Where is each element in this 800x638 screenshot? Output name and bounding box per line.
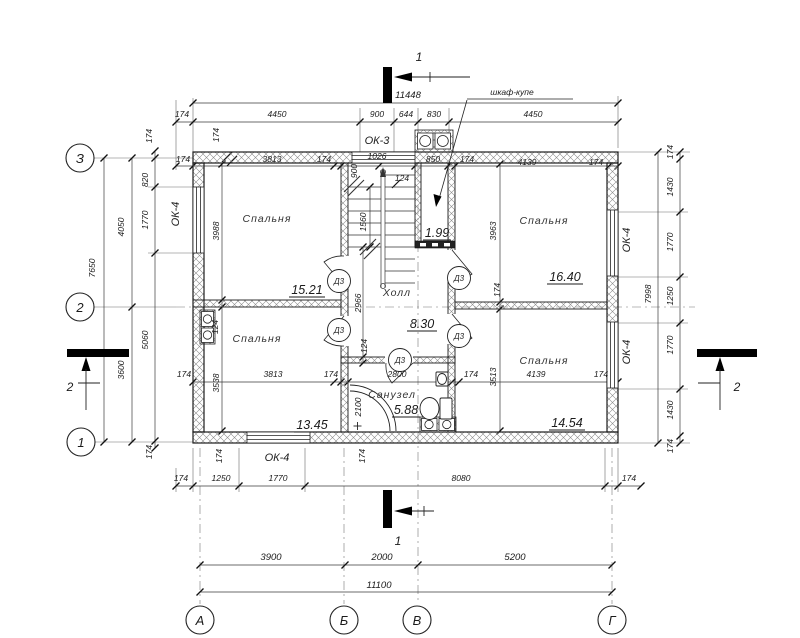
section-label-bottom: 1 <box>395 534 402 548</box>
dim-inner-top: 3813 <box>263 154 282 164</box>
dim-mid: 3813 <box>264 369 283 379</box>
dim-stair-width: 900 <box>349 164 359 178</box>
room-area-bedroom-tl: 15.21 <box>291 283 322 297</box>
axis-row-label: 2 <box>75 300 84 315</box>
dim-partition-tick: 124 <box>210 320 220 334</box>
window-label-ok4-right: ОК-4 <box>621 228 633 253</box>
dim-left-inner: 1770 <box>140 210 150 229</box>
dim-right-inner: 1770 <box>665 232 675 251</box>
axis-col-label: В <box>413 613 422 628</box>
dim-right-total: 7998 <box>643 284 653 303</box>
dim-wall-tick: 174 <box>144 129 154 143</box>
dim-left-axis: 4050 <box>116 217 126 236</box>
staircase <box>344 167 415 289</box>
dim-mid: 174 <box>464 369 478 379</box>
door-tag: Д3 <box>333 277 345 286</box>
dim-mid: 2800 <box>387 369 407 379</box>
window-label-ok4-left: ОК-4 <box>170 202 182 227</box>
floor-plan-drawing: 1 11448 174 4450 900 644 830 4450 шкаф-к… <box>0 0 800 638</box>
room-text: Спальня 15.21 Спальня 16.40 Спальня 13.4… <box>177 212 608 464</box>
room-name-bathroom: Санузел <box>368 389 416 401</box>
axis-col-label: Г <box>608 613 616 628</box>
window-ok4-bottom <box>247 432 310 443</box>
right-dimension-text: 7998 174 1430 1770 1250 1770 1430 174 ОК… <box>621 145 741 453</box>
wardrobe-front <box>415 241 455 248</box>
dim-room-height: 3963 <box>488 221 498 240</box>
dim-room-height: 3513 <box>488 367 498 386</box>
room-area-closet: 1.99 <box>425 226 449 240</box>
dim-left-axis: 3600 <box>116 360 126 379</box>
window-ok4-right-upper <box>607 210 618 276</box>
dim-bottom-total: 11100 <box>366 580 392 591</box>
dim-bottom: 1250 <box>212 473 231 483</box>
window-label-ok4-bottom: ОК-4 <box>265 452 290 464</box>
dim-inner-top: 4139 <box>518 157 537 167</box>
dim-right-inner: 174 <box>665 145 675 159</box>
dim-wall-tick: 174 <box>492 283 502 297</box>
dim-mid: 4139 <box>527 369 546 379</box>
dim-room-height: 3988 <box>211 221 221 240</box>
closet-callout-label: шкаф-купе <box>490 87 534 97</box>
dim-inner-top: 850 <box>426 154 440 164</box>
dim-axis-span: 2000 <box>370 552 393 563</box>
dim-top: 644 <box>399 109 413 119</box>
dim-inner-top: 174 <box>317 154 331 164</box>
door-tag: Д3 <box>333 326 345 335</box>
sink <box>436 372 448 386</box>
section-marker-bottom <box>383 490 434 528</box>
dim-top: 830 <box>427 109 441 119</box>
dim-shower: 2100 <box>353 397 363 417</box>
dim-inner-top: 1026 <box>368 151 387 161</box>
dim-wall-tick: 174 <box>214 449 224 463</box>
dim-wall-tick: 174 <box>211 128 221 142</box>
section-label-left: 2 <box>66 380 74 394</box>
section-label-top: 1 <box>416 50 423 64</box>
dim-top: 174 <box>175 109 189 119</box>
dim-axis-span: 5200 <box>504 552 526 563</box>
dim-right-inner: 174 <box>665 439 675 453</box>
door-tag: Д3 <box>453 274 465 283</box>
dim-left-inner: 5060 <box>140 330 150 349</box>
room-name-bedroom-br: Спальня <box>520 355 569 367</box>
dim-room-height: 3538 <box>211 373 221 392</box>
door-tag: Д3 <box>394 356 406 365</box>
door-tag: Д3 <box>453 332 465 341</box>
room-name-bedroom-bl: Спальня <box>233 333 282 345</box>
dim-bottom: 8080 <box>452 473 471 483</box>
floor-plan-canvas: 1 11448 174 4450 900 644 830 4450 шкаф-к… <box>0 0 800 638</box>
dim-mid: 174 <box>594 369 608 379</box>
dim-wall-tick: 174 <box>357 449 367 463</box>
dim-stair-offset: 124 <box>395 173 409 183</box>
dim-left-total: 7650 <box>87 258 97 277</box>
window-ok4-right-lower <box>607 322 618 388</box>
dim-top: 4450 <box>268 109 287 119</box>
room-name-hall: Холл <box>382 287 411 299</box>
room-area-bathroom: 5.88 <box>394 403 418 417</box>
room-area-bedroom-bl: 13.45 <box>296 418 327 432</box>
room-name-bedroom-tr: Спальня <box>520 215 569 227</box>
room-area-bedroom-tr: 16.40 <box>549 270 580 284</box>
vent-block-top <box>415 130 453 152</box>
dim-left-inner: 174 <box>144 445 154 459</box>
axis-row-label: З <box>76 151 84 166</box>
dim-inner-top: 174 <box>460 154 474 164</box>
section-label-right: 2 <box>733 380 741 394</box>
axis-row-label: 1 <box>77 435 84 450</box>
dim-stair-length: 1560 <box>358 212 368 231</box>
dim-bottom: 174 <box>174 473 188 483</box>
window-ok4-left <box>193 187 204 253</box>
dim-mid: 174 <box>324 369 338 379</box>
dim-hall-height: 2966 <box>353 293 363 313</box>
dim-bottom: 174 <box>622 473 636 483</box>
room-area-hall: 8.30 <box>410 317 434 331</box>
dim-top-total: 11448 <box>395 90 421 101</box>
dim-inner-top: 174 <box>589 157 603 167</box>
axis-col-label: Б <box>340 613 349 628</box>
dim-top: 900 <box>370 109 384 119</box>
dim-partition-tick: 124 <box>359 339 369 353</box>
window-label-ok4-right: ОК-4 <box>621 340 633 365</box>
dim-right-inner: 1430 <box>665 177 675 196</box>
room-area-bedroom-br: 14.54 <box>551 416 582 430</box>
section-marker-right <box>697 349 757 410</box>
dim-right-inner: 1430 <box>665 400 675 419</box>
toilet <box>420 398 452 420</box>
dim-mid: 174 <box>177 369 191 379</box>
dim-left-inner: 820 <box>140 173 150 187</box>
dim-top: 4450 <box>524 109 543 119</box>
dim-bottom: 1770 <box>269 473 288 483</box>
window-label-ok3: ОК-3 <box>365 135 391 147</box>
dim-right-inner: 1770 <box>665 335 675 354</box>
axis-col-label: А <box>195 613 205 628</box>
dim-inner-top: 174 <box>176 154 190 164</box>
dim-axis-span: 3900 <box>260 552 282 563</box>
bottom-dimension-text: 174 1250 1770 8080 174 174 174 1 3900 20… <box>174 449 636 591</box>
room-name-bedroom-tl: Спальня <box>243 213 292 225</box>
dim-right-inner: 1250 <box>665 286 675 305</box>
